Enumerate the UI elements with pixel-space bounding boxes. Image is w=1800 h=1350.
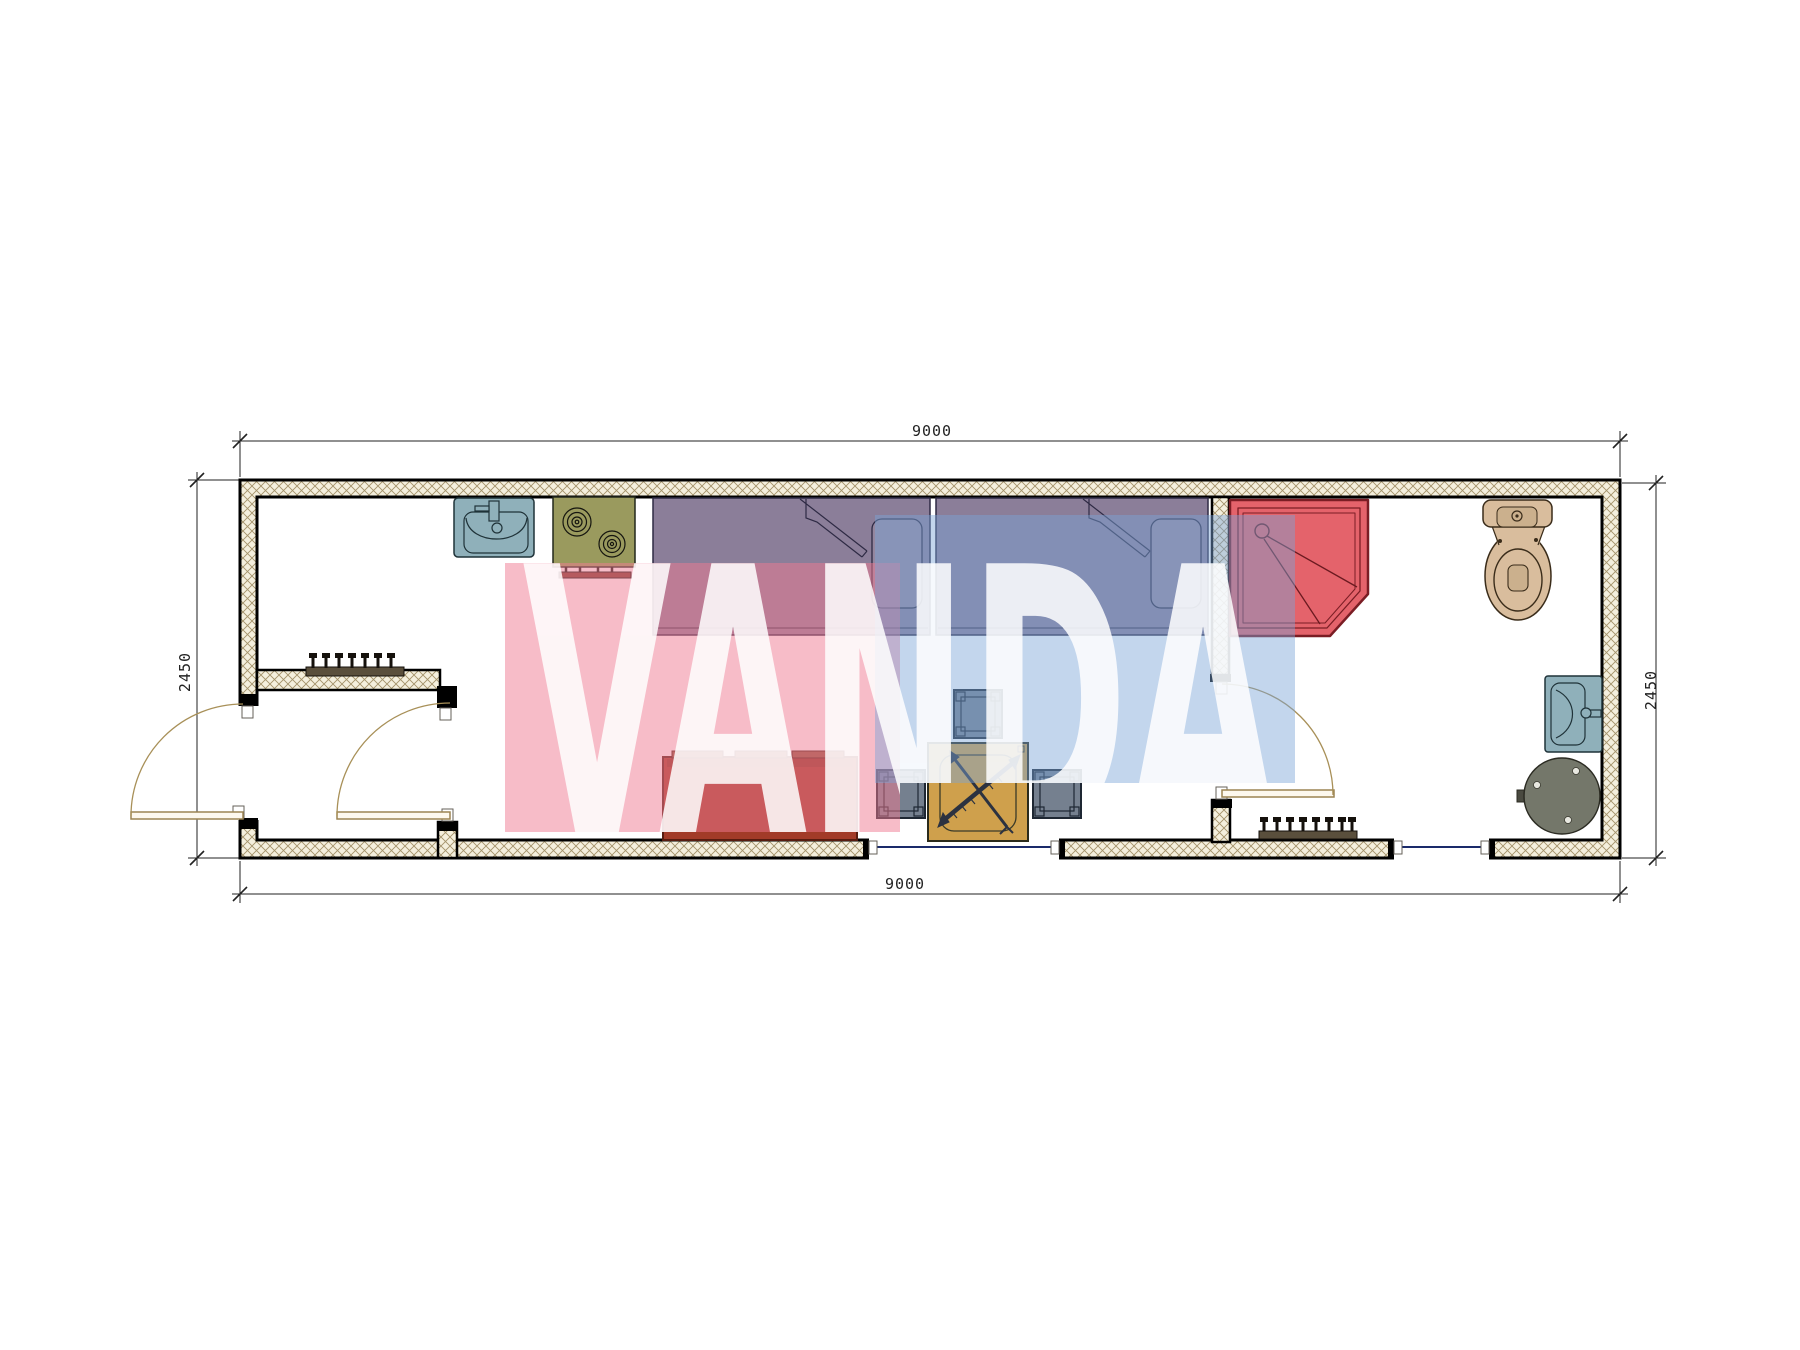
dim-label-top: 9000 xyxy=(912,422,952,440)
toilet xyxy=(1483,500,1552,620)
dim-label-right: 2450 xyxy=(1642,670,1660,710)
floor-plan-canvas: 9000 9000 2450 2450 xyxy=(0,0,1800,1350)
entrance-opening xyxy=(236,706,261,820)
kitchen-sink xyxy=(454,498,534,557)
dim-label-bottom: 9000 xyxy=(885,875,925,893)
faucet-icon xyxy=(1581,708,1601,718)
wash-basin xyxy=(1545,676,1602,752)
dim-label-left: 2450 xyxy=(176,652,194,692)
floor-plan-viewport: 9000 9000 2450 2450 xyxy=(0,0,1800,1350)
window-2-opening xyxy=(1394,837,1489,861)
